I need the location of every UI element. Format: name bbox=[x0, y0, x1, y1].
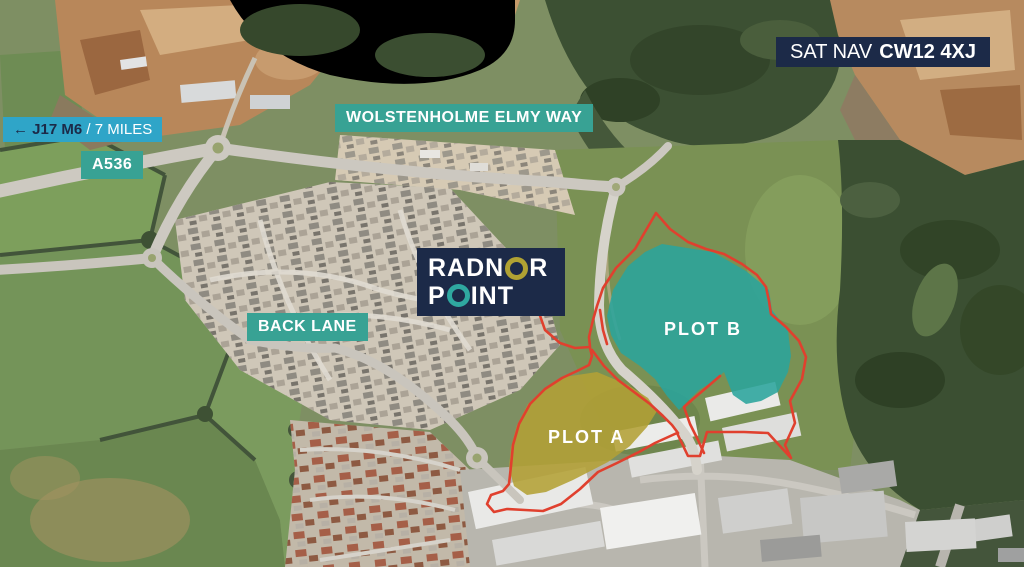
logo-point-post: INT bbox=[471, 283, 514, 309]
sat-nav-postcode: CW12 4XJ bbox=[879, 41, 976, 63]
logo-gold-ring-o bbox=[505, 257, 528, 280]
sat-nav-badge: SAT NAVCW12 4XJ bbox=[776, 37, 990, 67]
motorway-directions-badge: ← J17 M6 / 7 MILES bbox=[3, 117, 162, 142]
motorway-junction-label: ← J17 M6 bbox=[13, 121, 82, 138]
back-lane-badge: BACK LANE bbox=[247, 313, 368, 341]
logo-radnor-pre: RADN bbox=[428, 255, 504, 281]
motorway-distance-label: / 7 MILES bbox=[86, 121, 152, 138]
a536-road-badge: A536 bbox=[81, 151, 143, 179]
logo-word-point: PINT bbox=[428, 283, 565, 309]
logo-radnor-post: R bbox=[529, 255, 548, 281]
plot-a-label: PLOT A bbox=[548, 427, 625, 448]
logo-point-pre: P bbox=[428, 283, 446, 309]
logo-teal-ring-o bbox=[447, 284, 470, 307]
wolstenholme-elmy-way-badge: WOLSTENHOLME ELMY WAY bbox=[335, 104, 593, 132]
plot-b-label: PLOT B bbox=[664, 319, 742, 340]
radnor-point-logo: RADNR PINT bbox=[417, 248, 565, 316]
logo-word-radnor: RADNR bbox=[428, 255, 565, 281]
sat-nav-prefix: SAT NAV bbox=[790, 41, 872, 63]
site-map: SAT NAVCW12 4XJ ← J17 M6 / 7 MILES A536 … bbox=[0, 0, 1024, 567]
